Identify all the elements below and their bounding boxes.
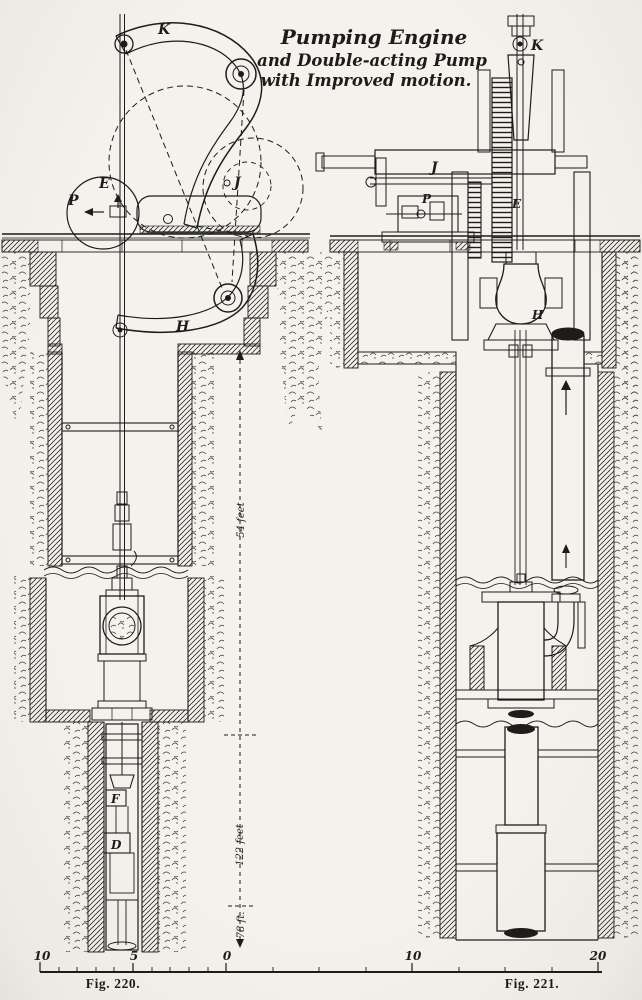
title-line-2: and Double-acting Pump <box>257 51 487 70</box>
fig221-label-E: E <box>511 197 522 211</box>
fig220-dim-upper: 54 feet <box>236 501 247 537</box>
scale-tick-10-left: 10 <box>34 949 51 963</box>
fig220-label-D: D <box>110 838 122 852</box>
title-line-1: Pumping Engine <box>280 25 467 49</box>
fig220-drawing: K E P J H <box>2 14 330 952</box>
title-line-3: with Improved motion. <box>261 71 472 90</box>
scale-tick-20: 20 <box>589 949 607 963</box>
fig220-label-K: K <box>157 22 171 38</box>
fig220-pump-body <box>92 551 152 720</box>
fig221-middle-chamber <box>456 544 598 718</box>
fig221-gear-wheel <box>492 78 512 262</box>
fig220-pump-chamber <box>30 551 204 722</box>
scale-tick-10-right: 10 <box>405 949 422 963</box>
fig221-label-H: H <box>531 308 544 322</box>
scale-bar: 10 5 0 10 20 <box>34 949 607 972</box>
plate-title: Pumping Engine and Double-acting Pump wi… <box>257 25 487 90</box>
fig220-dim-lower: 122 feet <box>235 823 246 866</box>
fig221-pit <box>344 252 616 940</box>
fig220-dim-bottom: 78 ft. <box>236 912 247 939</box>
fig220-pump-rod <box>113 14 131 600</box>
fig220-lower-well: F D <box>88 722 158 952</box>
fig220-label-H: H <box>175 319 190 335</box>
fig220-label-E: E <box>98 176 110 192</box>
fig220-label-P: P <box>67 193 79 209</box>
fig220-label-F: F <box>110 792 121 806</box>
scale-tick-5: 5 <box>130 949 138 963</box>
fig220-caption: Fig. 220. <box>86 976 141 991</box>
fig220-ground-surface <box>2 234 310 252</box>
engraving-page: Pumping Engine and Double-acting Pump wi… <box>0 0 642 1000</box>
fig221-label-P: P <box>421 192 432 206</box>
fig220-dimension-line: 54 feet 122 feet 78 ft. <box>224 350 258 948</box>
fig221-drawing: K J P E H <box>316 14 640 940</box>
fig220-label-J: J <box>231 175 242 191</box>
scale-tick-0: 0 <box>223 949 232 963</box>
pumping-engine-plate: Pumping Engine and Double-acting Pump wi… <box>0 0 642 1000</box>
fig220-pit-walls <box>30 252 276 354</box>
fig221-bottom-chamber <box>456 721 598 940</box>
fig221-label-K: K <box>530 38 544 54</box>
fig221-ground-surface <box>330 236 640 252</box>
fig221-caption: Fig. 221. <box>505 976 560 991</box>
